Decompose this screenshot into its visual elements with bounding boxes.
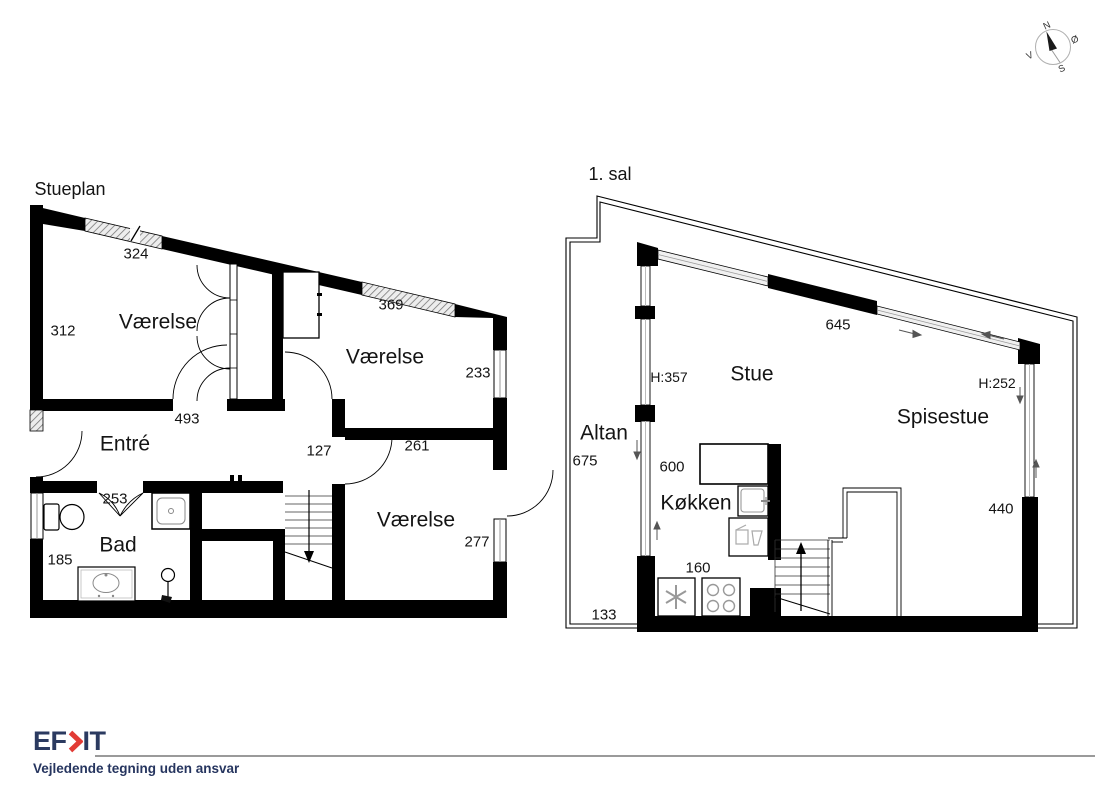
height-252-label: H:252: [978, 376, 1015, 390]
shower-icon: [152, 493, 190, 529]
bathroom-sink-icon: [78, 567, 135, 601]
room-stue-label: Stue: [730, 364, 773, 385]
dim-261-label: 261: [404, 439, 429, 454]
logo-chevron-icon: [68, 730, 83, 753]
first-floor-title: 1. sal: [588, 165, 631, 183]
disclaimer-text: Vejledende tegning uden ansvar: [33, 761, 239, 776]
floorplan-drawing: [0, 0, 1110, 785]
first-floor-plan: [566, 196, 1077, 632]
dim-312-label: 312: [50, 324, 75, 339]
dim-440-label: 440: [988, 502, 1013, 517]
dim-127-label: 127: [306, 444, 331, 459]
dim-675-label: 675: [572, 454, 597, 469]
dim-324-label: 324: [123, 247, 148, 262]
room-spisestue-label: Spisestue: [897, 407, 989, 428]
dim-233-label: 233: [465, 366, 490, 381]
dim-133-label: 133: [591, 608, 616, 623]
dim-600-label: 600: [659, 460, 684, 475]
dishwasher-icon: [729, 518, 768, 556]
room-vaerelse2-label: Værelse: [346, 347, 424, 368]
closet-partition: [230, 264, 237, 399]
room-vaerelse1-label: Værelse: [119, 312, 197, 333]
room-altan-label: Altan: [580, 423, 628, 444]
stove-icon: [702, 578, 740, 616]
kitchen-sink-icon: [738, 486, 770, 516]
first-floor-stairs: [775, 540, 832, 616]
dim-185-label: 185: [47, 553, 72, 568]
floorplan-page: Stueplan 324 312 Værelse 369 Værelse 233…: [0, 0, 1110, 785]
height-357-label: H:357: [650, 370, 687, 384]
dim-493-label: 493: [174, 412, 199, 427]
room-bad-label: Bad: [99, 535, 136, 556]
wardrobe: [283, 272, 322, 338]
dim-160-label: 160: [685, 561, 710, 576]
stueplan-title: Stueplan: [34, 180, 105, 198]
logo-text-left: EF: [33, 726, 67, 757]
logo-text-right: IT: [83, 726, 106, 757]
room-vaerelse3-label: Værelse: [377, 510, 455, 531]
kitchen-hob-fan-icon: [658, 578, 695, 616]
kitchen-tall-cabinet: [700, 444, 768, 484]
room-entre-label: Entré: [100, 434, 150, 455]
compass-icon: [1036, 30, 1071, 65]
company-logo: EF IT: [33, 726, 106, 757]
dim-645-label: 645: [825, 318, 850, 333]
dim-369-label: 369: [378, 298, 403, 313]
footer-divider: [95, 755, 1095, 757]
dim-277-label: 277: [464, 535, 489, 550]
stueplan-stairs: [285, 490, 332, 568]
stair-railing: [828, 488, 901, 616]
stairs-up-arrow-icon: [796, 542, 806, 554]
room-kokken-label: Køkken: [660, 493, 731, 514]
dim-253-label: 253: [102, 492, 127, 507]
floor-faucet-icon: [161, 569, 175, 604]
toilet-icon: [44, 504, 84, 530]
